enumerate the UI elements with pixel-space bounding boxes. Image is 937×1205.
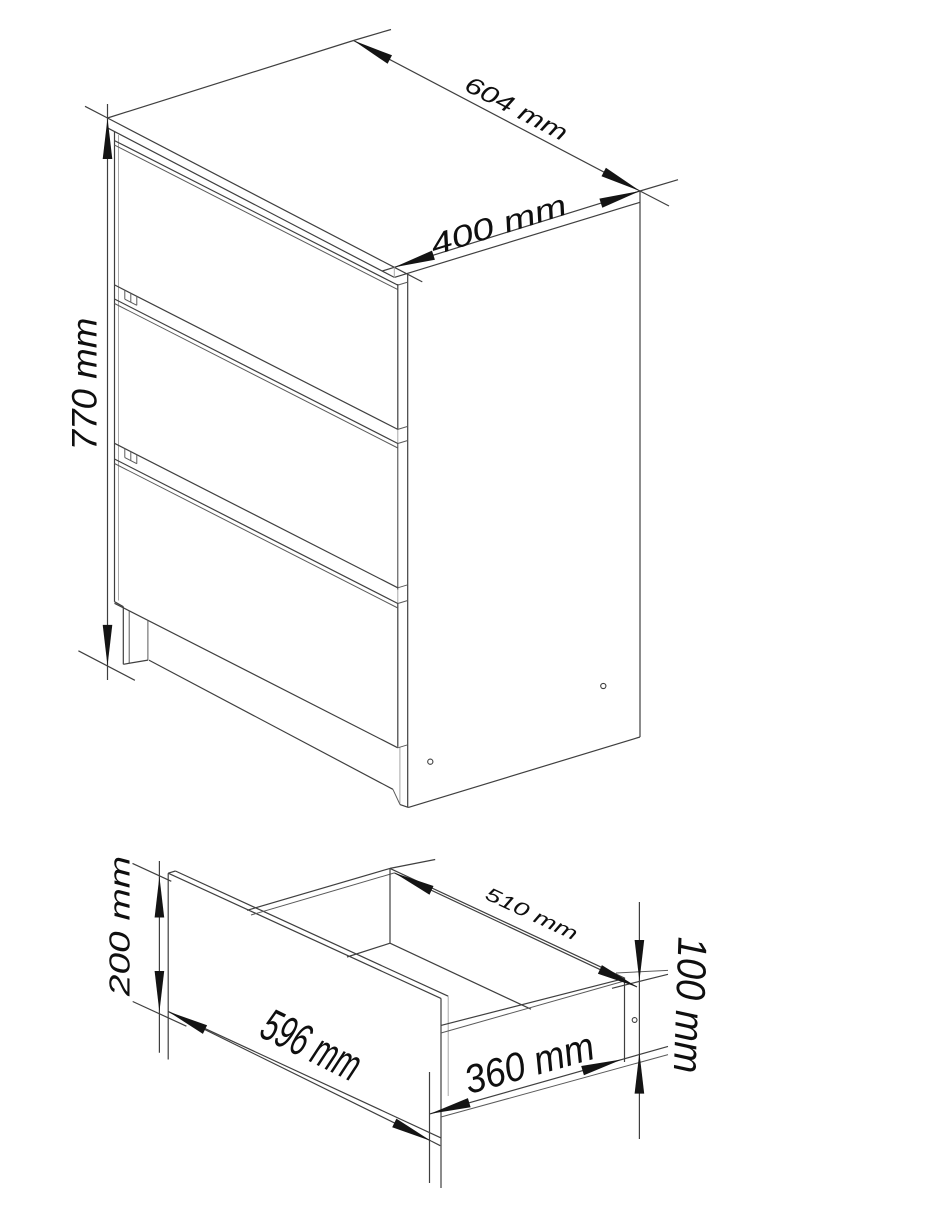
svg-text:770 mm: 770 mm: [65, 318, 104, 451]
svg-text:200 mm: 200 mm: [104, 856, 136, 997]
svg-text:100 mm: 100 mm: [664, 936, 715, 1074]
